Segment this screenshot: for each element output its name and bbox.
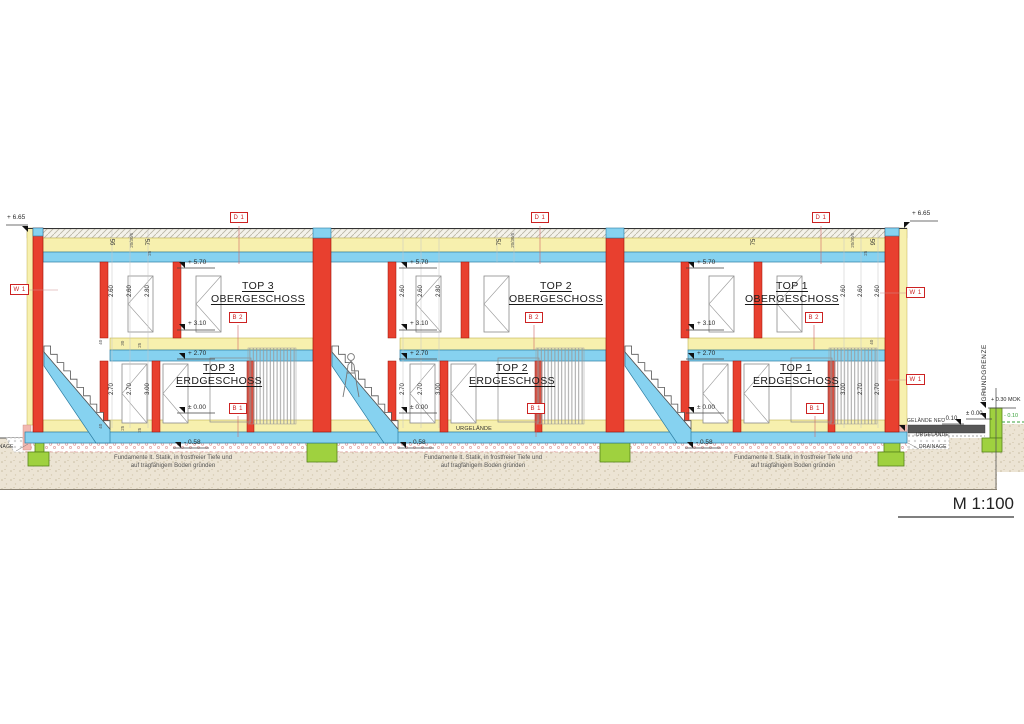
level-og-ceiling-u3: + 5.70 — [697, 260, 715, 267]
dim-roof-25-right: 25 — [864, 245, 869, 261]
room-label-top1-og: TOP 1 OBERGESCHOSS — [732, 280, 852, 305]
marker-b1-u3: B 1 — [806, 403, 824, 414]
dim-og-1-u2: 2.60 — [400, 279, 406, 303]
dim-slab-30-u1: 30 — [121, 335, 126, 351]
dim-roof-95-left: 95 — [111, 230, 117, 254]
dim-eg-1-u2: 2.70 — [400, 377, 406, 401]
level-og-ceiling-u1: + 5.70 — [188, 260, 206, 267]
urgelaende-label-mid: URGELÄNDE — [456, 427, 492, 433]
level-terrain-new: - 0.10 — [942, 416, 957, 422]
foundation-note-u1-l2: auf tragfähigem Boden gründen — [131, 463, 215, 469]
level-og-floor-u3: + 3.10 — [697, 321, 715, 328]
level-roof-right: + 6.65 — [912, 211, 930, 218]
marker-b1-u2: B 1 — [527, 403, 545, 414]
level-eg-floor-u3: ± 0.00 — [697, 405, 715, 412]
room-label-top2-og: TOP 2 OBERGESCHOSS — [496, 280, 616, 305]
room-label-top2-og-floor: OBERGESCHOSS — [496, 293, 616, 306]
dim-eg-2-u1: 2.70 — [127, 377, 133, 401]
room-label-top1-og-name: TOP 1 — [732, 280, 852, 293]
marker-d1-u2: D 1 — [531, 212, 549, 223]
marker-b2-u2: B 2 — [525, 312, 543, 323]
marker-w1-right-lower: W 1 — [906, 374, 925, 385]
dim-slab-40-u3: 40 — [870, 334, 875, 350]
room-label-top3-og-floor: OBERGESCHOSS — [198, 293, 318, 306]
foundation-note-u2-l1: Fundamente lt. Statik, in frostfreier Ti… — [424, 455, 542, 461]
level-terrain-zero: ± 0.00 — [966, 411, 983, 417]
dim-roof-25-left: 25 — [148, 245, 153, 261]
dim-og-1-u3: 2.60 — [841, 279, 847, 303]
dim-roof-75-mid: 75 — [497, 230, 503, 254]
level-roof-left: + 6.65 — [7, 215, 25, 222]
level-foundation-u2: - 0.58 — [409, 440, 426, 447]
room-label-top3-eg: TOP 3 ERDGESCHOSS — [159, 362, 279, 387]
room-label-top1-eg-name: TOP 1 — [736, 362, 856, 375]
dim-slab-25-u1: 25 — [138, 337, 143, 353]
marker-w1-right-upper: W 1 — [906, 287, 925, 298]
dim-eg-2-u3: 2.70 — [858, 377, 864, 401]
level-eg-ceiling-u3: + 2.70 — [697, 351, 715, 358]
level-eg-floor-u1: ± 0.00 — [188, 405, 206, 412]
marker-w1-left: W 1 — [10, 284, 29, 295]
foundation-note-u2-l2: auf tragfähigem Boden gründen — [441, 463, 525, 469]
marker-b1-u1: B 1 — [229, 403, 247, 414]
dim-roof-95-right: 95 — [871, 230, 877, 254]
dim-eg-3-u2: 3.00 — [436, 377, 442, 401]
foundation-note-u3: Fundamente lt. Statik, in frostfreier Ti… — [703, 454, 883, 471]
dim-eg-2-u2: 2.70 — [418, 377, 424, 401]
level-foundation-u3: - 0.58 — [696, 440, 713, 447]
dim-eg-3-u1: 3.00 — [145, 377, 151, 401]
dim-roof-75-right: 75 — [751, 230, 757, 254]
room-label-top3-eg-name: TOP 3 — [159, 362, 279, 375]
scale-label: M 1:100 — [884, 495, 1014, 512]
dim-og-2-u2: 2.60 — [418, 279, 424, 303]
room-label-top1-eg-floor: ERDGESCHOSS — [736, 375, 856, 388]
room-label-top1-og-floor: OBERGESCHOSS — [732, 293, 852, 306]
room-label-top2-eg-name: TOP 2 — [452, 362, 572, 375]
dim-roof-layers-left: 20/30/5 — [130, 232, 135, 248]
level-eg-floor-u2: ± 0.00 — [410, 405, 428, 412]
urgelaende-label-right: URGELÄNDE — [916, 433, 949, 438]
dim-floor-25b-u1: 25 — [138, 422, 143, 438]
marker-b2-u1: B 2 — [229, 312, 247, 323]
level-og-floor-u1: + 3.10 — [188, 321, 206, 328]
level-wall-top: + 0.30 MOK — [991, 398, 1021, 404]
foundation-note-u2: Fundamente lt. Statik, in frostfreier Ti… — [393, 454, 573, 471]
level-eg-ceiling-u2: + 2.70 — [410, 351, 428, 358]
gelaende-neu-label: GELÄNDE NEU — [907, 419, 945, 424]
dim-og-3-u1: 2.80 — [145, 279, 151, 303]
room-label-top3-og: TOP 3 OBERGESCHOSS — [198, 280, 318, 305]
level-foundation-u1: - 0.58 — [184, 440, 201, 447]
foundation-note-u3-l2: auf tragfähigem Boden gründen — [751, 463, 835, 469]
drainage-label-left: DRAINAGE — [0, 445, 14, 450]
marker-d1-u1: D 1 — [230, 212, 248, 223]
marker-d1-u3: D 1 — [812, 212, 830, 223]
room-label-top3-og-name: TOP 3 — [198, 280, 318, 293]
foundation-note-u1: Fundamente lt. Statik, in frostfreier Ti… — [83, 454, 263, 471]
level-eg-ceiling-u1: + 2.70 — [188, 351, 206, 358]
dim-og-2-u1: 2.60 — [127, 279, 133, 303]
dim-roof-layers-right: 20/30/5 — [851, 232, 856, 248]
dim-roof-layers-mid: 20/30/5 — [511, 232, 516, 248]
dim-og-3-u3: 2.60 — [875, 279, 881, 303]
dim-eg-1-u3: 3.00 — [841, 377, 847, 401]
level-og-floor-u2: + 3.10 — [410, 321, 428, 328]
foundation-note-u3-l1: Fundamente lt. Statik, in frostfreier Ti… — [734, 455, 852, 461]
dim-og-2-u3: 2.60 — [858, 279, 864, 303]
room-label-top1-eg: TOP 1 ERDGESCHOSS — [736, 362, 856, 387]
level-urterrain: - 0.10 — [1004, 414, 1018, 420]
marker-b2-u3: B 2 — [805, 312, 823, 323]
architectural-section-sheet: + 6.65 + 6.65 + 5.70 + 3.10 + 2.70 ± 0.0… — [0, 0, 1024, 724]
level-og-ceiling-u2: + 5.70 — [410, 260, 428, 267]
dim-eg-1-u1: 2.70 — [109, 377, 115, 401]
room-label-top2-eg: TOP 2 ERDGESCHOSS — [452, 362, 572, 387]
dim-floor-25a-u1: 25 — [121, 420, 126, 436]
room-label-top2-eg-floor: ERDGESCHOSS — [452, 375, 572, 388]
foundation-note-u1-l1: Fundamente lt. Statik, in frostfreier Ti… — [114, 455, 232, 461]
drainage-label-right: DRAINAGE — [919, 445, 947, 450]
dim-og-1-u1: 2.60 — [109, 279, 115, 303]
room-label-top2-og-name: TOP 2 — [496, 280, 616, 293]
dim-slab-40-u1: 40 — [99, 334, 104, 350]
dim-floor-40-u1: 40 — [99, 418, 104, 434]
room-label-top3-eg-floor: ERDGESCHOSS — [159, 375, 279, 388]
dim-eg-3-u3: 2.70 — [875, 377, 881, 401]
dim-og-3-u2: 2.80 — [436, 279, 442, 303]
dim-25-grundgrenze: 25 — [982, 382, 987, 398]
